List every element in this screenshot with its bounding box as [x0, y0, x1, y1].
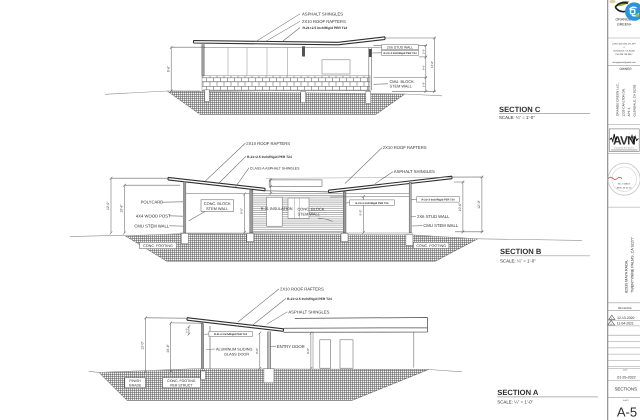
svg-text:2X10 ROOF RAFTERS: 2X10 ROOF RAFTERS: [246, 141, 290, 146]
svg-text:SCALE: ¼" = 1'-0": SCALE: ¼" = 1'-0": [497, 399, 533, 404]
svg-text:12-13-2020: 12-13-2020: [617, 316, 634, 320]
svg-text:2'-6": 2'-6": [422, 82, 425, 87]
svg-text:12'-0": 12'-0": [106, 201, 110, 210]
svg-text:2'-2": 2'-2": [185, 328, 188, 333]
svg-text:01-25-2022: 01-25-2022: [617, 375, 635, 379]
svg-text:1229 CARLTON DR. APT: 1229 CARLTON DR. APT: [612, 42, 636, 45]
svg-text:REN. 10-31-23: REN. 10-31-23: [617, 186, 632, 189]
svg-text:R-21 INSULATION: R-21 INSULATION: [261, 207, 293, 211]
svg-text:SECTION A: SECTION A: [497, 388, 539, 397]
svg-text:12'-8": 12'-8": [430, 61, 434, 68]
svg-text:CONC. FOOTING: CONC. FOOTING: [416, 244, 446, 248]
svg-text:1229 CARLTON DR.: 1229 CARLTON DR.: [622, 88, 626, 117]
svg-text:ASPHALT SHINGLES: ASPHALT SHINGLES: [302, 11, 343, 16]
svg-text:R-21+2 Inch/Rigid PER T24: R-21+2 Inch/Rigid PER T24: [355, 202, 389, 205]
svg-text:9'-8": 9'-8": [166, 65, 170, 72]
svg-text:ENTRY DOOR: ENTRY DOOR: [277, 344, 305, 349]
svg-text:CMU STEM WALL: CMU STEM WALL: [134, 223, 169, 228]
svg-text:POLYCARB: POLYCARB: [141, 200, 164, 205]
svg-text:12'-0": 12'-0": [141, 340, 145, 349]
svg-text:9'-0": 9'-0": [359, 210, 363, 216]
svg-text:ALUMINUM SLIDING: ALUMINUM SLIDING: [216, 347, 253, 351]
svg-text:9'-0": 9'-0": [240, 208, 244, 214]
svg-text:REVISIONS: REVISIONS: [618, 307, 632, 310]
svg-text:No. C-38517: No. C-38517: [618, 183, 631, 186]
svg-text:8'-0": 8'-0": [306, 348, 310, 354]
svg-text:PER STRUCT: PER STRUCT: [170, 384, 193, 388]
svg-text:R-21+2 Inch/Rigid PER T24: R-21+2 Inch/Rigid PER T24: [214, 333, 248, 336]
svg-text:10'-8": 10'-8": [166, 343, 170, 352]
svg-text:GLENDALE, CA 91205: GLENDALE, CA 91205: [613, 49, 635, 52]
svg-text:2X6 STUD WALL: 2X6 STUD WALL: [387, 45, 413, 49]
svg-text:2X10 ROOF RAFTERS: 2X10 ROOF RAFTERS: [302, 19, 346, 24]
svg-text:CMU STEM WALL: CMU STEM WALL: [423, 223, 458, 228]
svg-text:TWENTYNINE PALMS, CA 92277: TWENTYNINE PALMS, CA 92277: [631, 237, 635, 293]
svg-text:orangegreen@gmail.com: orangegreen@gmail.com: [612, 61, 636, 64]
svg-text:FINISH: FINISH: [129, 379, 141, 383]
svg-text:GRADE: GRADE: [129, 384, 142, 388]
svg-text:CONC. FOOTING: CONC. FOOTING: [167, 379, 195, 383]
svg-text:2X10 ROOF RAFTERS: 2X10 ROOF RAFTERS: [383, 145, 427, 150]
svg-text:A-5: A-5: [617, 404, 637, 419]
svg-text:CLASS A ASPHALT SHINGLES: CLASS A ASPHALT SHINGLES: [250, 166, 300, 170]
svg-text:4X4 WOOD POST: 4X4 WOOD POST: [136, 213, 171, 218]
svg-text:R-21+2 Inch/Rigid PER T24: R-21+2 Inch/Rigid PER T24: [421, 199, 455, 202]
svg-text:STEM WALL: STEM WALL: [298, 212, 321, 217]
svg-text:STEM WALL: STEM WALL: [206, 206, 229, 211]
svg-text:11-04-2021: 11-04-2021: [617, 321, 634, 325]
svg-text:SECTION C: SECTION C: [499, 105, 541, 114]
svg-text:A V N A R C H I T E C T S: A V N A R C H I T E C T S: [614, 146, 634, 149]
svg-text:10'-6": 10'-6": [458, 202, 462, 211]
svg-text:SCALE: ¼" = 1'-0": SCALE: ¼" = 1'-0": [500, 259, 536, 264]
svg-text:12'-0": 12'-0": [477, 199, 481, 208]
svg-text:SECTION B: SECTION B: [500, 247, 542, 256]
svg-text:10'-6": 10'-6": [120, 203, 124, 212]
svg-text:OWNER: OWNER: [619, 67, 632, 71]
svg-text:GLENDALE, CA 91205: GLENDALE, CA 91205: [632, 84, 636, 116]
svg-text:R-21+2.5 Inch/Rigid PER T24: R-21+2.5 Inch/Rigid PER T24: [303, 26, 348, 30]
svg-text:GREEN+: GREEN+: [617, 23, 632, 27]
svg-text:R-21+2.5 Inch/Rigid PER T24: R-21+2.5 Inch/Rigid PER T24: [287, 297, 332, 301]
svg-text:GLASS DOOR: GLASS DOOR: [224, 352, 249, 356]
svg-text:ORANGE GREEN LLC,: ORANGE GREEN LLC,: [616, 83, 620, 116]
svg-text:9'-0": 9'-0": [422, 65, 425, 70]
svg-text:2X6 STUD WALL: 2X6 STUD WALL: [417, 214, 450, 219]
svg-text:8'-0": 8'-0": [255, 348, 259, 354]
svg-text:R-21+2 Inch/Rigid PER T24: R-21+2 Inch/Rigid PER T24: [383, 52, 417, 55]
svg-text:2'-0": 2'-0": [422, 49, 425, 54]
svg-text:82935 MAYA RADA,: 82935 MAYA RADA,: [625, 260, 629, 293]
svg-text:ASPHALT SHINGLES: ASPHALT SHINGLES: [394, 169, 435, 174]
svg-text:CONC. FOOTING: CONC. FOOTING: [143, 244, 173, 248]
svg-text:SCALE: ¼" = 1'-0": SCALE: ¼" = 1'-0": [499, 115, 535, 120]
svg-text:SHEET: SHEET: [623, 399, 629, 402]
svg-text:SECTIONS: SECTIONS: [614, 387, 637, 392]
svg-text:PH: 808-760-0057: PH: 808-760-0057: [616, 53, 634, 56]
svg-text:STEM WALL: STEM WALL: [390, 84, 413, 89]
svg-text:APT 4,: APT 4,: [627, 107, 631, 117]
svg-text:ASPHALT SHINGLES: ASPHALT SHINGLES: [288, 309, 329, 314]
svg-text:2X10 ROOF RAFTERS: 2X10 ROOF RAFTERS: [280, 287, 324, 292]
svg-text:R-21+2.5 Inch/Rigid PER T24: R-21+2.5 Inch/Rigid PER T24: [247, 155, 292, 159]
